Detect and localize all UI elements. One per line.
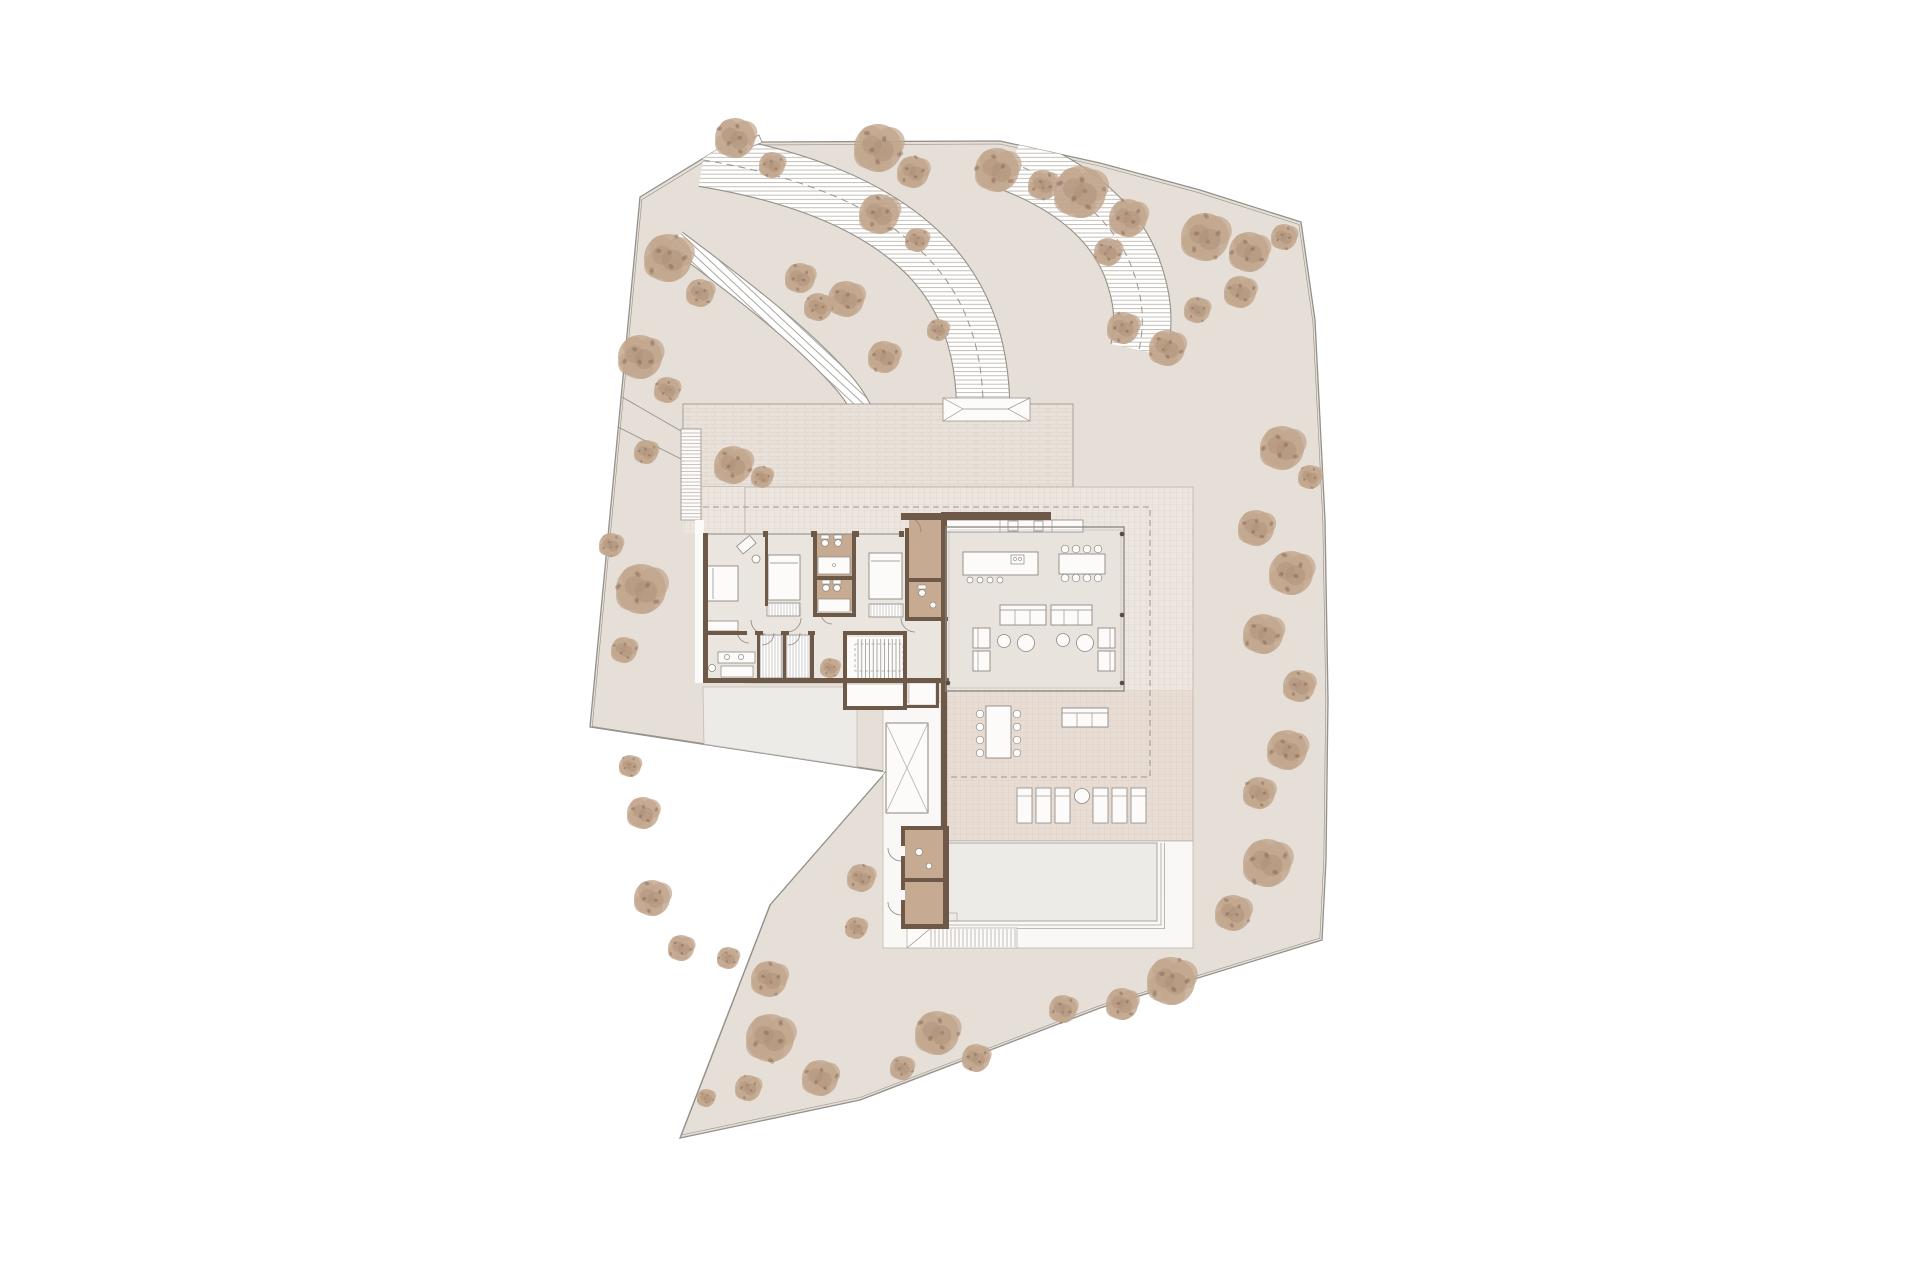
bar-stool — [977, 577, 983, 583]
wall — [905, 580, 909, 619]
wall — [901, 513, 947, 520]
parasol-table — [1075, 789, 1090, 804]
rect — [833, 580, 841, 584]
tree — [1106, 988, 1140, 1020]
wall — [901, 826, 905, 846]
wall — [765, 534, 768, 606]
outdoor-chair — [976, 723, 984, 731]
circle — [834, 585, 841, 592]
wall — [757, 633, 760, 681]
wall — [703, 533, 708, 683]
wall — [843, 706, 907, 710]
coffee-table — [1077, 635, 1094, 652]
site-plan-figure — [0, 0, 1920, 1280]
dining-chair — [1061, 545, 1069, 553]
dining-chair — [1083, 545, 1091, 553]
column — [946, 681, 951, 686]
outdoor-chair — [976, 736, 984, 744]
closet-2 — [786, 635, 810, 678]
coffee-table — [998, 635, 1011, 648]
tree — [717, 947, 740, 969]
shower-1 — [818, 557, 850, 574]
bed-1 — [706, 566, 738, 601]
entry-vestibule-floor — [909, 518, 941, 580]
sun-lounger — [1131, 788, 1146, 823]
rect — [834, 535, 842, 539]
wall — [810, 633, 814, 681]
tree — [1147, 957, 1198, 1005]
wall — [811, 531, 816, 537]
wall — [907, 680, 939, 683]
west-margin — [695, 520, 704, 683]
utility-floor — [909, 683, 936, 705]
basin-ensuite — [930, 602, 936, 608]
bath-cabinet — [721, 666, 753, 677]
wall — [901, 856, 905, 890]
column — [1120, 681, 1125, 686]
rect — [918, 585, 926, 589]
dining-chair — [1072, 545, 1080, 553]
wall — [907, 705, 939, 708]
outdoor-chair — [1013, 736, 1021, 744]
wc-ensuite — [919, 590, 926, 597]
outdoor-chair — [976, 749, 984, 757]
armchair — [973, 651, 990, 671]
wall — [905, 578, 945, 582]
dining-chair — [1083, 574, 1091, 582]
tree — [634, 880, 672, 916]
tree — [627, 797, 661, 829]
cooktop — [1011, 555, 1024, 564]
swimming-pool — [947, 843, 1157, 921]
sun-lounger — [1093, 788, 1108, 823]
wall — [941, 685, 947, 828]
wall — [843, 683, 847, 708]
dresser-1 — [707, 621, 738, 631]
dining-chair — [1072, 574, 1080, 582]
wc-tank — [821, 535, 829, 539]
outdoor-table — [986, 706, 1011, 758]
outdoor-sofa — [1062, 708, 1108, 727]
outdoor-chair — [1013, 749, 1021, 757]
pool-house-basin — [926, 863, 932, 869]
floor-plan-page — [0, 0, 1920, 1280]
column — [1120, 613, 1125, 618]
wall — [854, 531, 859, 537]
wardrobe-3 — [869, 604, 903, 617]
wall — [943, 826, 949, 929]
tree — [1049, 995, 1079, 1024]
sun-lounger — [1112, 788, 1127, 823]
coffee-table — [1018, 635, 1035, 652]
wall — [813, 576, 856, 580]
bed-3 — [869, 553, 902, 599]
tree — [668, 935, 696, 961]
bar-stool — [967, 577, 973, 583]
dining-table — [1059, 554, 1105, 574]
circle — [822, 540, 829, 547]
armchair — [1098, 651, 1115, 671]
pool-stair — [907, 928, 1017, 948]
sun-lounger — [1055, 788, 1070, 823]
kitchen-island — [963, 552, 1038, 575]
pool-house-floor — [905, 830, 943, 924]
wall — [901, 878, 949, 882]
bed-2 — [768, 555, 800, 600]
tree — [962, 1044, 992, 1072]
stair-floor — [847, 637, 903, 680]
vanity-counter — [718, 652, 755, 663]
shower-2 — [818, 599, 850, 612]
dining-chair — [1094, 574, 1102, 582]
wall — [901, 924, 949, 929]
desk-chair — [752, 555, 760, 563]
oven — [1008, 521, 1018, 531]
circle — [835, 540, 842, 547]
garage-skylight — [943, 398, 1030, 421]
sofa-2 — [1051, 605, 1092, 625]
wall — [852, 531, 856, 617]
sun-lounger — [1036, 788, 1051, 823]
wall — [813, 613, 856, 617]
pool-house-wc — [915, 848, 922, 855]
rect — [822, 580, 830, 584]
wall — [899, 531, 904, 537]
wall — [941, 512, 1051, 520]
wall — [903, 633, 907, 683]
wall — [901, 900, 905, 926]
bar-stool — [997, 577, 1003, 583]
storage-floor — [847, 685, 903, 706]
wall — [903, 683, 907, 708]
wardrobe-2 — [767, 603, 800, 616]
wc-guest — [708, 664, 715, 671]
lower-patio — [703, 687, 857, 767]
wall — [843, 633, 847, 683]
outdoor-chair — [1013, 710, 1021, 718]
coffee-table — [1057, 634, 1070, 647]
outdoor-chair — [976, 710, 984, 718]
wall — [905, 528, 909, 580]
tree — [619, 755, 642, 777]
circle — [823, 585, 830, 592]
armchair — [973, 628, 990, 648]
sun-lounger — [1017, 788, 1032, 823]
wall — [703, 631, 747, 635]
wall — [783, 633, 786, 681]
column — [1120, 532, 1125, 537]
wall — [763, 531, 768, 537]
wall — [813, 531, 817, 617]
sofa-1 — [1000, 605, 1046, 625]
wall — [901, 826, 949, 830]
wall — [843, 631, 907, 635]
armchair — [1098, 628, 1115, 648]
wall — [936, 680, 939, 708]
dining-chair — [1094, 545, 1102, 553]
dining-chair — [1061, 574, 1069, 582]
fridge — [1034, 521, 1043, 531]
site-plan-svg — [0, 0, 1920, 1280]
outdoor-chair — [1013, 723, 1021, 731]
bar-stool — [987, 577, 993, 583]
